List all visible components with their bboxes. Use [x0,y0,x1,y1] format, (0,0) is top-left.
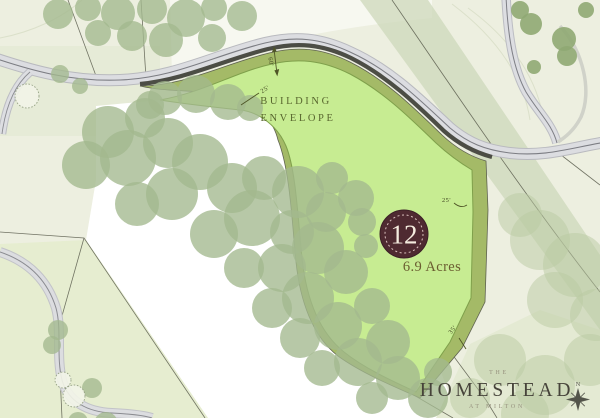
lot-area-label: 6.9 Acres [403,259,461,275]
building-envelope-label-line1: BUILDING [260,96,332,107]
lot-number: 12 [391,220,418,250]
site-plan-map: 60' 25' 25' 35' BUILDING ENVELOPE 12 6.9… [0,0,600,418]
logo-suffix: AT MILTON [469,404,525,410]
logo-name: HOMESTEAD [420,380,574,401]
building-envelope-label-line2: ENVELOPE [260,113,335,124]
logo-prefix: THE [489,370,509,376]
lot-badge[interactable]: 12 [380,210,428,258]
dimension-60ft-label: 60' [266,57,274,67]
north-label: N [576,381,581,388]
site-plan: 60' 25' 25' 35' BUILDING ENVELOPE 12 6.9… [0,0,600,418]
dimension-25ft-side-label: 25' [442,197,451,204]
